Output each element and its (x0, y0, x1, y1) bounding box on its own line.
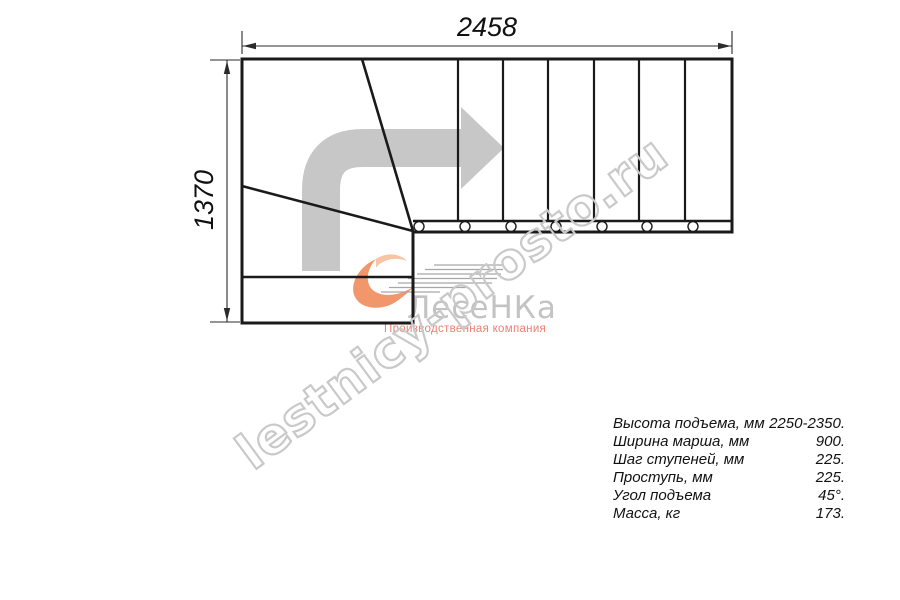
baluster-circle (551, 222, 561, 232)
direction-arrow (321, 107, 504, 271)
spec-label: Шаг ступеней, мм (613, 451, 744, 469)
staircase-drawing-page: ЛесеНКа Производственная компания (0, 0, 900, 600)
spec-label: Высота подъема, мм (613, 415, 765, 433)
spec-row: Масса, кг 173. (613, 505, 845, 523)
spec-label: Проступь, мм (613, 469, 713, 487)
spec-row: Высота подъема, мм 2250-2350. (613, 415, 845, 433)
step-divider-lines (458, 59, 685, 221)
spec-row: Ширина марша, мм 900. (613, 433, 845, 451)
spec-value: 225. (816, 451, 845, 469)
spec-value: 45°. (818, 487, 845, 505)
logo-tagline: Производственная компания (384, 323, 546, 335)
direction-arrow-head (461, 107, 504, 189)
winder-step-lines (242, 59, 413, 277)
logo-swoosh-icon (353, 254, 413, 307)
spec-label: Масса, кг (613, 505, 680, 523)
dimension-height-label: 1370 (189, 155, 221, 245)
baluster-circle (688, 222, 698, 232)
spec-row: Угол подъема 45°. (613, 487, 845, 505)
spec-label: Ширина марша, мм (613, 433, 749, 451)
logo-speed-lines-icon (381, 265, 504, 292)
staircase-outline (242, 59, 732, 323)
dimension-width-label: 2458 (387, 12, 587, 43)
baluster-circles (414, 222, 698, 232)
baluster-circle (597, 222, 607, 232)
spec-table: Высота подъема, мм 2250-2350. Ширина мар… (613, 415, 845, 523)
spec-row: Проступь, мм 225. (613, 469, 845, 487)
spec-value: 225. (816, 469, 845, 487)
spec-row: Шаг ступеней, мм 225. (613, 451, 845, 469)
baluster-circle (460, 222, 470, 232)
spec-value: 173. (816, 505, 845, 523)
logo-brand-name: ЛесеНКа (407, 290, 557, 326)
spec-value: 2250-2350. (769, 415, 845, 433)
baluster-circle (642, 222, 652, 232)
spec-label: Угол подъема (613, 487, 711, 505)
baluster-circle (506, 222, 516, 232)
dimension-arrowheads (224, 43, 731, 321)
dimension-lines (210, 31, 732, 322)
spec-value: 900. (816, 433, 845, 451)
baluster-circle (414, 222, 424, 232)
